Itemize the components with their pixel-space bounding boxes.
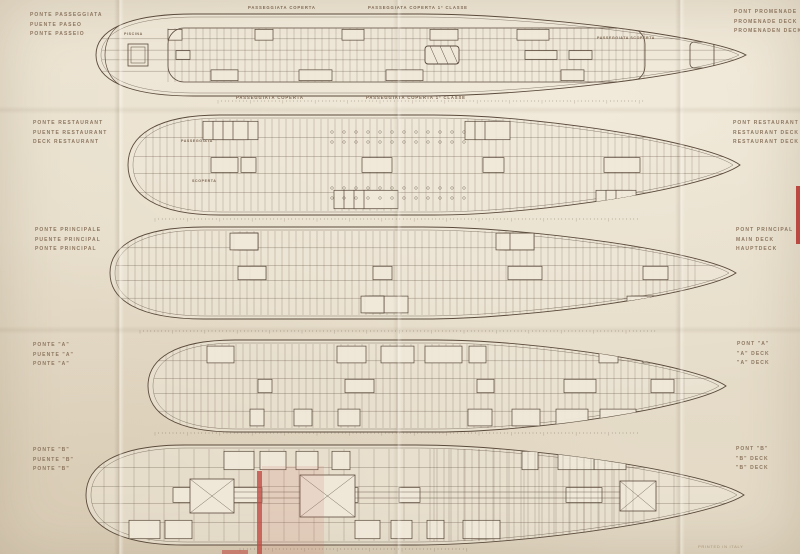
deck3-right-line2: MAIN DECK bbox=[736, 236, 793, 246]
deck-plan-promenade-deck bbox=[96, 14, 746, 96]
red-backing-bottom-sliver bbox=[222, 550, 248, 554]
deck2-left-label: PONTE RESTAURANT PUENTE RESTAURANT DECK … bbox=[33, 119, 107, 148]
pink-scan-tint bbox=[262, 466, 324, 554]
deck1-right-line2: PROMENADE DECK bbox=[734, 18, 800, 28]
deck4-left-line1: PONTE "A" bbox=[33, 341, 74, 351]
deck4-left-label: PONTE "A" PUENTE "A" PONTE "A" bbox=[33, 341, 74, 370]
deck3-left-label: PONTE PRINCIPALE PUENTE PRINCIPAL PONTE … bbox=[35, 226, 101, 255]
red-backing-right-edge bbox=[796, 186, 800, 244]
deck2-right-label: PONT RESTAURANT RESTAURANT DECK RESTAURA… bbox=[733, 119, 799, 148]
promenade-coperta-top-aft: PASSEGGIATA COPERTA bbox=[248, 5, 316, 11]
deck4-right-line2: "A" DECK bbox=[737, 350, 770, 360]
deck1-right-label: PONT PROMENADE PROMENADE DECK PROMENADEN… bbox=[734, 8, 800, 37]
piscina-label: PISCINA bbox=[124, 31, 143, 37]
deck2-left-line2: PUENTE RESTAURANT bbox=[33, 129, 107, 139]
deck4-left-line3: PONTE "A" bbox=[33, 360, 74, 370]
deck2-left-line3: DECK RESTAURANT bbox=[33, 138, 107, 148]
deck3-left-line3: PONTE PRINCIPAL bbox=[35, 245, 101, 255]
deck5-left-line1: PONTE "B" bbox=[33, 446, 74, 456]
deck3-left-line1: PONTE PRINCIPALE bbox=[35, 226, 101, 236]
dimension-ticks bbox=[140, 330, 655, 334]
deck-plan-restaurant-deck bbox=[128, 115, 740, 215]
deck4-right-line3: "A" DECK bbox=[737, 359, 770, 369]
deck5-right-line3: "B" DECK bbox=[736, 464, 769, 474]
deck4-right-line1: PONT "A" bbox=[737, 340, 770, 350]
passeggiata-scoperta-label: PASSEGGIATA SCOPERTA bbox=[597, 35, 655, 41]
deck-plan-main-deck bbox=[110, 227, 736, 319]
deck1-right-line3: PROMENADEN DECK bbox=[734, 27, 800, 37]
deck3-left-line2: PUENTE PRINCIPAL bbox=[35, 236, 101, 246]
deck5-left-line3: PONTE "B" bbox=[33, 465, 74, 475]
deck1-left-line2: PUENTE PASEO bbox=[30, 21, 103, 31]
deck4-right-label: PONT "A" "A" DECK "A" DECK bbox=[737, 340, 770, 369]
deck3-right-label: PONT PRINCIPAL MAIN DECK HAUPTDECK bbox=[736, 226, 793, 255]
deck2-passeggiata-label: PASSEGGIATA bbox=[181, 138, 213, 144]
deck2-left-line1: PONTE RESTAURANT bbox=[33, 119, 107, 129]
deck2-right-line2: RESTAURANT DECK bbox=[733, 129, 799, 139]
deck4-left-line2: PUENTE "A" bbox=[33, 351, 74, 361]
deck5-left-line2: PUENTE "B" bbox=[33, 456, 74, 466]
deck1-left-line1: PONTE PASSEGGIATA bbox=[30, 11, 103, 21]
deck1-right-line1: PONT PROMENADE bbox=[734, 8, 800, 18]
deck2-scoperta-label: SCOPERTA bbox=[192, 178, 217, 184]
ship-deck-plans-canvas bbox=[0, 0, 800, 554]
dimension-ticks bbox=[155, 432, 637, 436]
deck-plan-b-deck bbox=[86, 445, 744, 545]
deck5-right-label: PONT "B" "B" DECK "B" DECK bbox=[736, 445, 769, 474]
deck2-right-line1: PONT RESTAURANT bbox=[733, 119, 799, 129]
deck5-left-label: PONTE "B" PUENTE "B" PONTE "B" bbox=[33, 446, 74, 475]
deck-plan-a-deck bbox=[148, 340, 726, 432]
deck1-left-label: PONTE PASSEGGIATA PUENTE PASEO PONTE PAS… bbox=[30, 11, 103, 40]
deck5-right-line2: "B" DECK bbox=[736, 455, 769, 465]
dimension-ticks bbox=[155, 218, 637, 222]
promenade-coperta-bottom-fwd: PASSEGGIATA COPERTA 1ª CLASSE bbox=[366, 95, 466, 101]
deck5-right-line1: PONT "B" bbox=[736, 445, 769, 455]
deck3-right-line1: PONT PRINCIPAL bbox=[736, 226, 793, 236]
deck-plan-sheet: PONTE PASSEGGIATA PUENTE PASEO PONTE PAS… bbox=[0, 0, 800, 554]
promenade-coperta-top-fwd: PASSEGGIATA COPERTA 1ª CLASSE bbox=[368, 5, 468, 11]
deck2-right-line3: RESTAURANT DECK bbox=[733, 138, 799, 148]
deck3-right-line3: HAUPTDECK bbox=[736, 245, 793, 255]
promenade-coperta-bottom-aft: PASSEGGIATA COPERTA bbox=[236, 95, 304, 101]
printer-credit: PRINTED IN ITALY bbox=[698, 544, 744, 549]
deck1-left-line3: PONTE PASSEIO bbox=[30, 30, 103, 40]
